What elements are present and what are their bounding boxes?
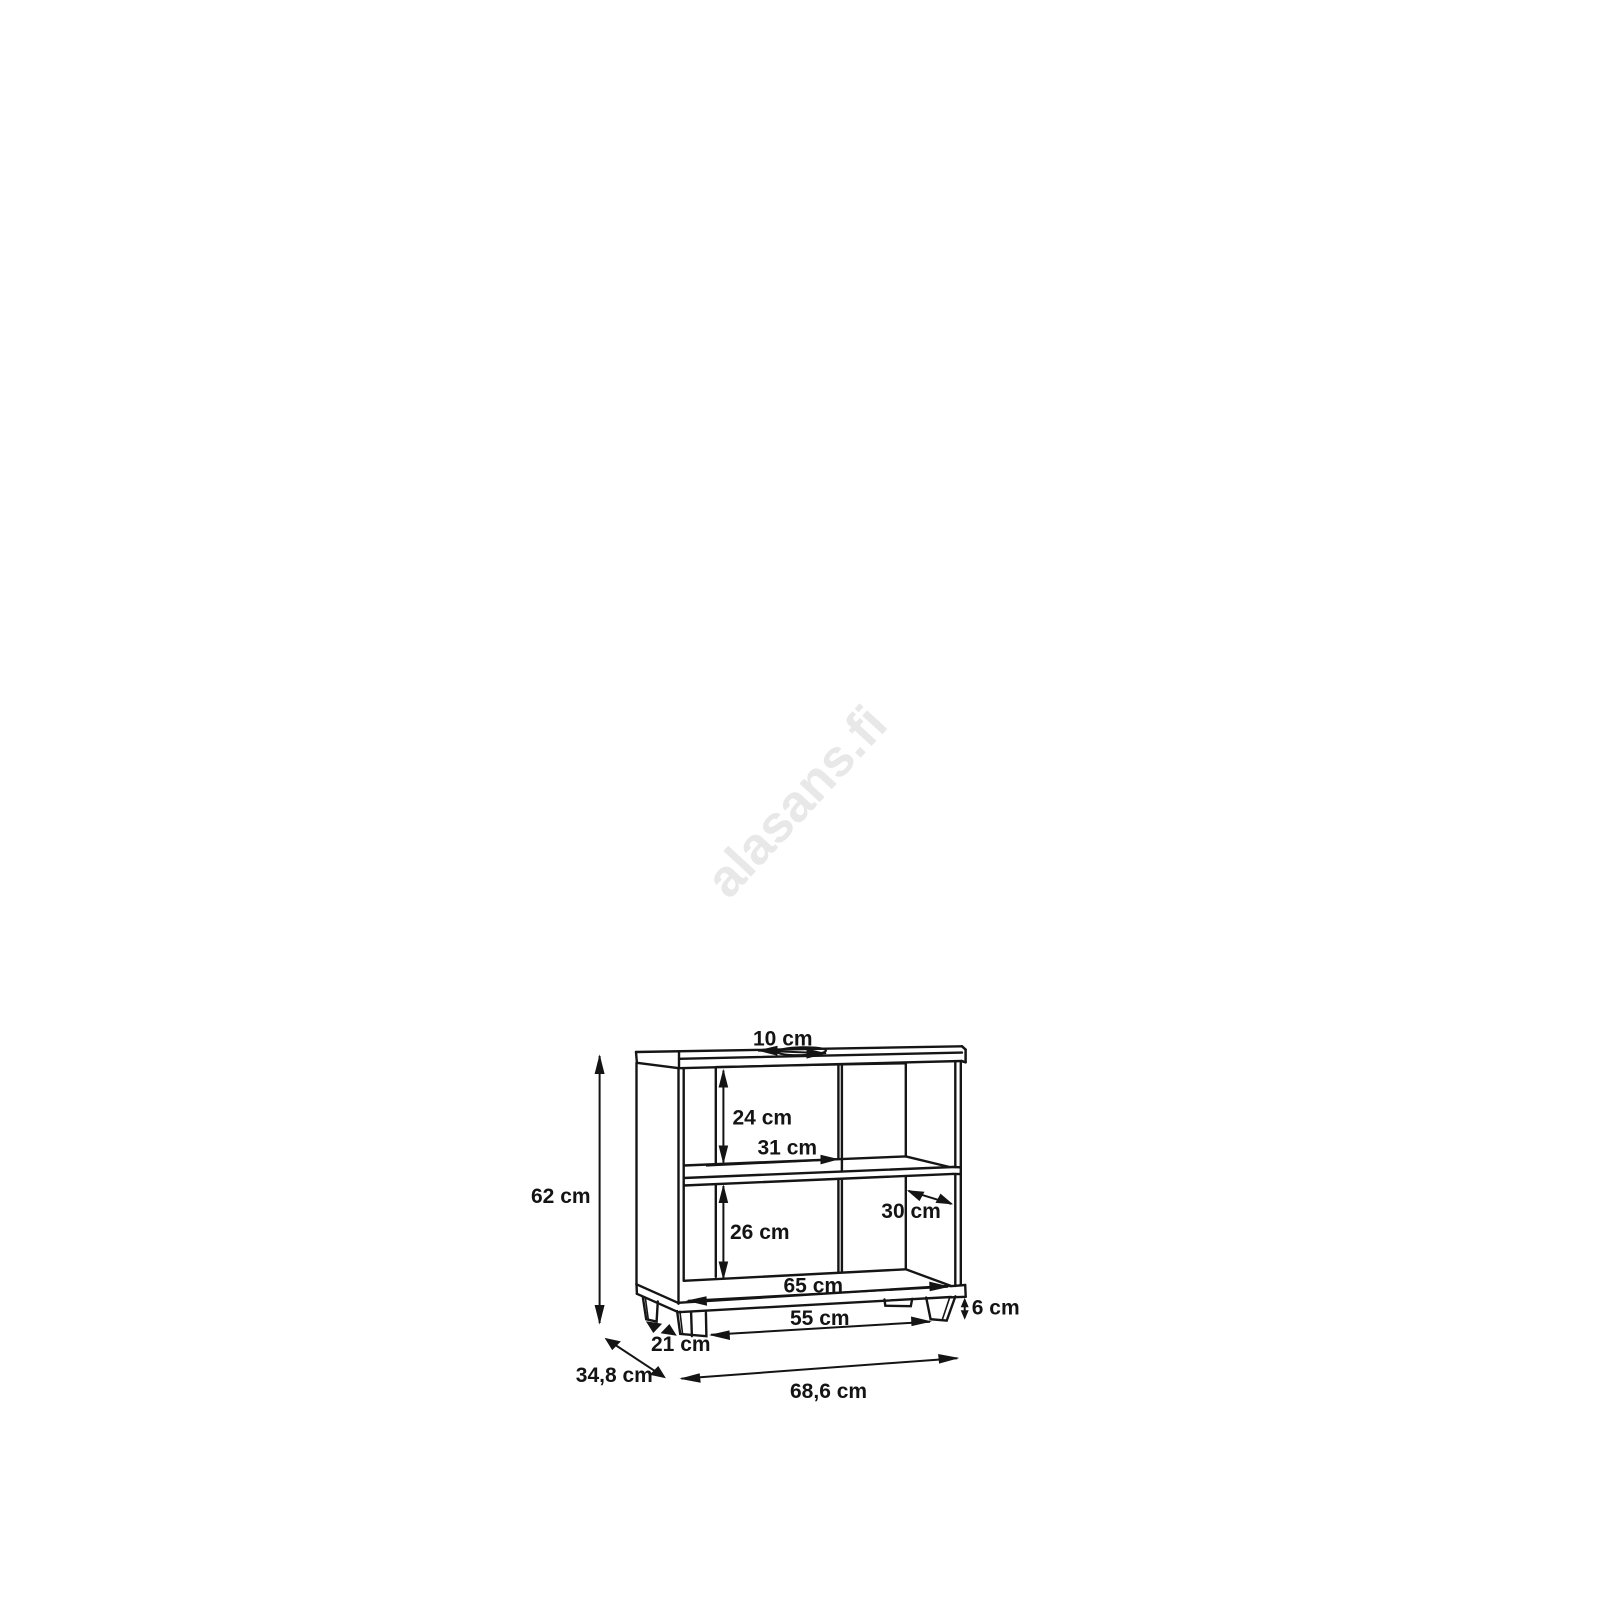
svg-text:62 cm: 62 cm [531,1185,591,1208]
svg-text:31 cm: 31 cm [758,1137,818,1160]
svg-text:68,6 cm: 68,6 cm [790,1380,867,1403]
svg-text:10 cm: 10 cm [753,1028,813,1051]
svg-text:34,8 cm: 34,8 cm [576,1364,653,1387]
svg-text:24 cm: 24 cm [733,1107,793,1130]
svg-text:26 cm: 26 cm [730,1221,790,1244]
svg-text:30 cm: 30 cm [881,1200,941,1223]
svg-text:6 cm: 6 cm [972,1297,1020,1320]
svg-text:21 cm: 21 cm [651,1333,711,1356]
svg-text:55 cm: 55 cm [790,1307,850,1330]
svg-text:65 cm: 65 cm [784,1275,844,1298]
